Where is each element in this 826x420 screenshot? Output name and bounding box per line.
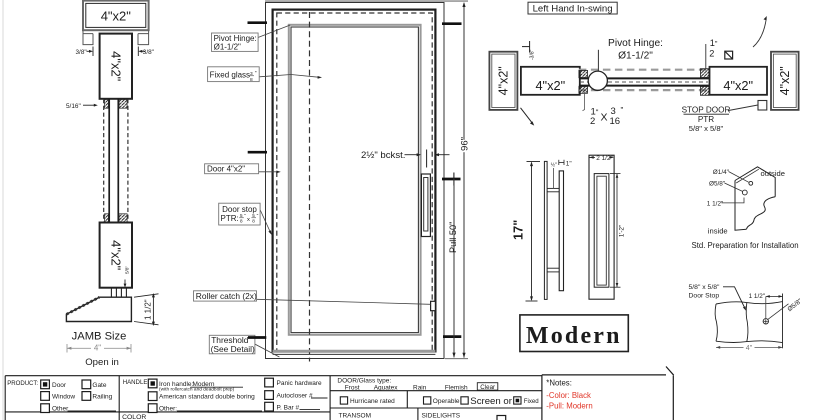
svg-text:*Notes:: *Notes: — [546, 379, 572, 388]
svg-text:Autocloser #: Autocloser # — [277, 393, 314, 400]
svg-text:Gate: Gate — [92, 382, 106, 389]
svg-text:Pivot Hinge:: Pivot Hinge: — [608, 38, 663, 49]
svg-text:COLOR: COLOR — [122, 414, 146, 420]
svg-text:Rain: Rain — [413, 385, 427, 392]
svg-text:3/8": 3/8" — [76, 49, 87, 56]
svg-text:Ø1-1/2": Ø1-1/2" — [214, 42, 241, 51]
svg-text:4": 4" — [94, 344, 101, 353]
svg-text:(See Detail): (See Detail) — [211, 344, 255, 354]
svg-text:1": 1" — [710, 38, 718, 48]
svg-text:1'-2": 1'-2" — [619, 225, 626, 237]
svg-text:American standard double borin: American standard double boring — [159, 394, 255, 401]
svg-text:": " — [255, 71, 257, 77]
svg-text:STOP DOOR: STOP DOOR — [682, 105, 731, 114]
svg-text:1 1/2": 1 1/2" — [749, 293, 765, 300]
svg-text:8: 8 — [252, 219, 255, 224]
svg-text:SIDELIGHTS: SIDELIGHTS — [422, 412, 461, 419]
svg-text:Frost: Frost — [345, 385, 360, 392]
svg-text:Std. Preparation for Installat: Std. Preparation for Installation — [692, 241, 799, 250]
svg-text:Pull 50": Pull 50" — [448, 222, 458, 253]
svg-text:5/8" x 5/8": 5/8" x 5/8" — [689, 284, 720, 291]
svg-text:Door: Door — [52, 382, 67, 389]
svg-text:2 1/2": 2 1/2" — [596, 155, 612, 162]
svg-text:5: 5 — [240, 213, 243, 218]
svg-text:-Color: Black: -Color: Black — [546, 391, 591, 400]
svg-text:4"x2": 4"x2" — [108, 51, 123, 82]
svg-text:Flemish: Flemish — [445, 385, 468, 392]
svg-text:Aquatex: Aquatex — [374, 385, 399, 392]
svg-text:Ø1-1/2": Ø1-1/2" — [618, 51, 653, 62]
svg-text:Railing: Railing — [92, 394, 112, 401]
svg-text:PTR: PTR — [698, 115, 714, 124]
svg-text:outside: outside — [761, 169, 786, 178]
svg-text:2: 2 — [709, 49, 714, 59]
svg-text:½": ½" — [551, 162, 557, 169]
svg-text:Window: Window — [52, 394, 75, 401]
svg-text:5: 5 — [252, 213, 255, 218]
svg-text:4"x2": 4"x2" — [535, 78, 565, 93]
svg-text:HANDLE: HANDLE — [123, 379, 148, 386]
svg-text:Screen or: Screen or — [470, 396, 512, 407]
svg-text:5/8": 5/8" — [125, 266, 130, 274]
svg-text:5/8" x 5/8": 5/8" x 5/8" — [689, 124, 724, 133]
svg-text:1": 1" — [566, 160, 572, 167]
svg-text:17": 17" — [511, 220, 526, 240]
svg-text:x: x — [247, 217, 250, 223]
svg-text:Door 4"x2": Door 4"x2" — [207, 165, 245, 174]
svg-text:2½" bckst.: 2½" bckst. — [361, 150, 405, 161]
svg-text:3/8": 3/8" — [143, 49, 154, 56]
svg-text:PTR:: PTR: — [221, 214, 239, 223]
svg-text:TRANSOM: TRANSOM — [339, 412, 372, 419]
svg-text:1 1/2": 1 1/2" — [707, 200, 723, 207]
svg-text:4"x2": 4"x2" — [723, 78, 753, 93]
svg-text:Panic hardware: Panic hardware — [277, 380, 323, 387]
svg-text:5/16": 5/16" — [66, 103, 81, 110]
svg-text:8: 8 — [250, 77, 253, 83]
svg-text:4"x2": 4"x2" — [778, 66, 792, 95]
svg-text:Other: Other — [52, 406, 69, 413]
svg-text:Open in: Open in — [85, 357, 119, 368]
svg-text:4"x2": 4"x2" — [108, 240, 123, 271]
svg-text:Ø5/8": Ø5/8" — [786, 298, 803, 313]
svg-text:Left Hand In-swing: Left Hand In-swing — [533, 3, 613, 14]
svg-text:-Pull: Modern: -Pull: Modern — [546, 401, 592, 410]
svg-text:X: X — [601, 112, 608, 124]
svg-text:inside: inside — [708, 226, 728, 235]
svg-text:Clear: Clear — [480, 384, 495, 391]
svg-text:Ø1/4": Ø1/4" — [713, 169, 729, 176]
svg-text:Ø5/8": Ø5/8" — [709, 180, 725, 187]
svg-text:8: 8 — [240, 219, 243, 224]
svg-text:96": 96" — [459, 137, 470, 151]
svg-text:1 1/2": 1 1/2" — [144, 299, 153, 320]
svg-text:PRODUCT:: PRODUCT: — [7, 380, 38, 387]
svg-text:Door Stop: Door Stop — [689, 293, 720, 300]
svg-text:4"x2": 4"x2" — [101, 9, 132, 24]
svg-text:": " — [621, 106, 624, 115]
svg-text:4"x2": 4"x2" — [497, 66, 511, 95]
svg-text:4": 4" — [746, 345, 753, 352]
svg-text:": " — [257, 213, 259, 219]
svg-text:Modern: Modern — [526, 323, 622, 349]
svg-text:Fixed glass: Fixed glass — [210, 71, 250, 80]
svg-text:Roller catch (2x): Roller catch (2x) — [196, 291, 257, 301]
svg-text:DOOR/Glass type:: DOOR/Glass type: — [337, 378, 391, 385]
svg-text:Other:: Other: — [159, 406, 177, 413]
svg-text:Hurricane rated: Hurricane rated — [350, 398, 395, 405]
svg-text:JAMB Size: JAMB Size — [72, 331, 127, 343]
svg-text:2: 2 — [590, 116, 595, 127]
svg-text:Operable: Operable — [433, 398, 460, 405]
svg-text:Fixed: Fixed — [524, 398, 539, 405]
svg-text:(with rollercatch and deadbolt: (with rollercatch and deadbolt prep) — [159, 387, 235, 393]
svg-text:P. Bar #: P. Bar # — [277, 404, 300, 411]
svg-text:16: 16 — [610, 116, 621, 127]
svg-text:-3/8": -3/8" — [530, 49, 536, 60]
